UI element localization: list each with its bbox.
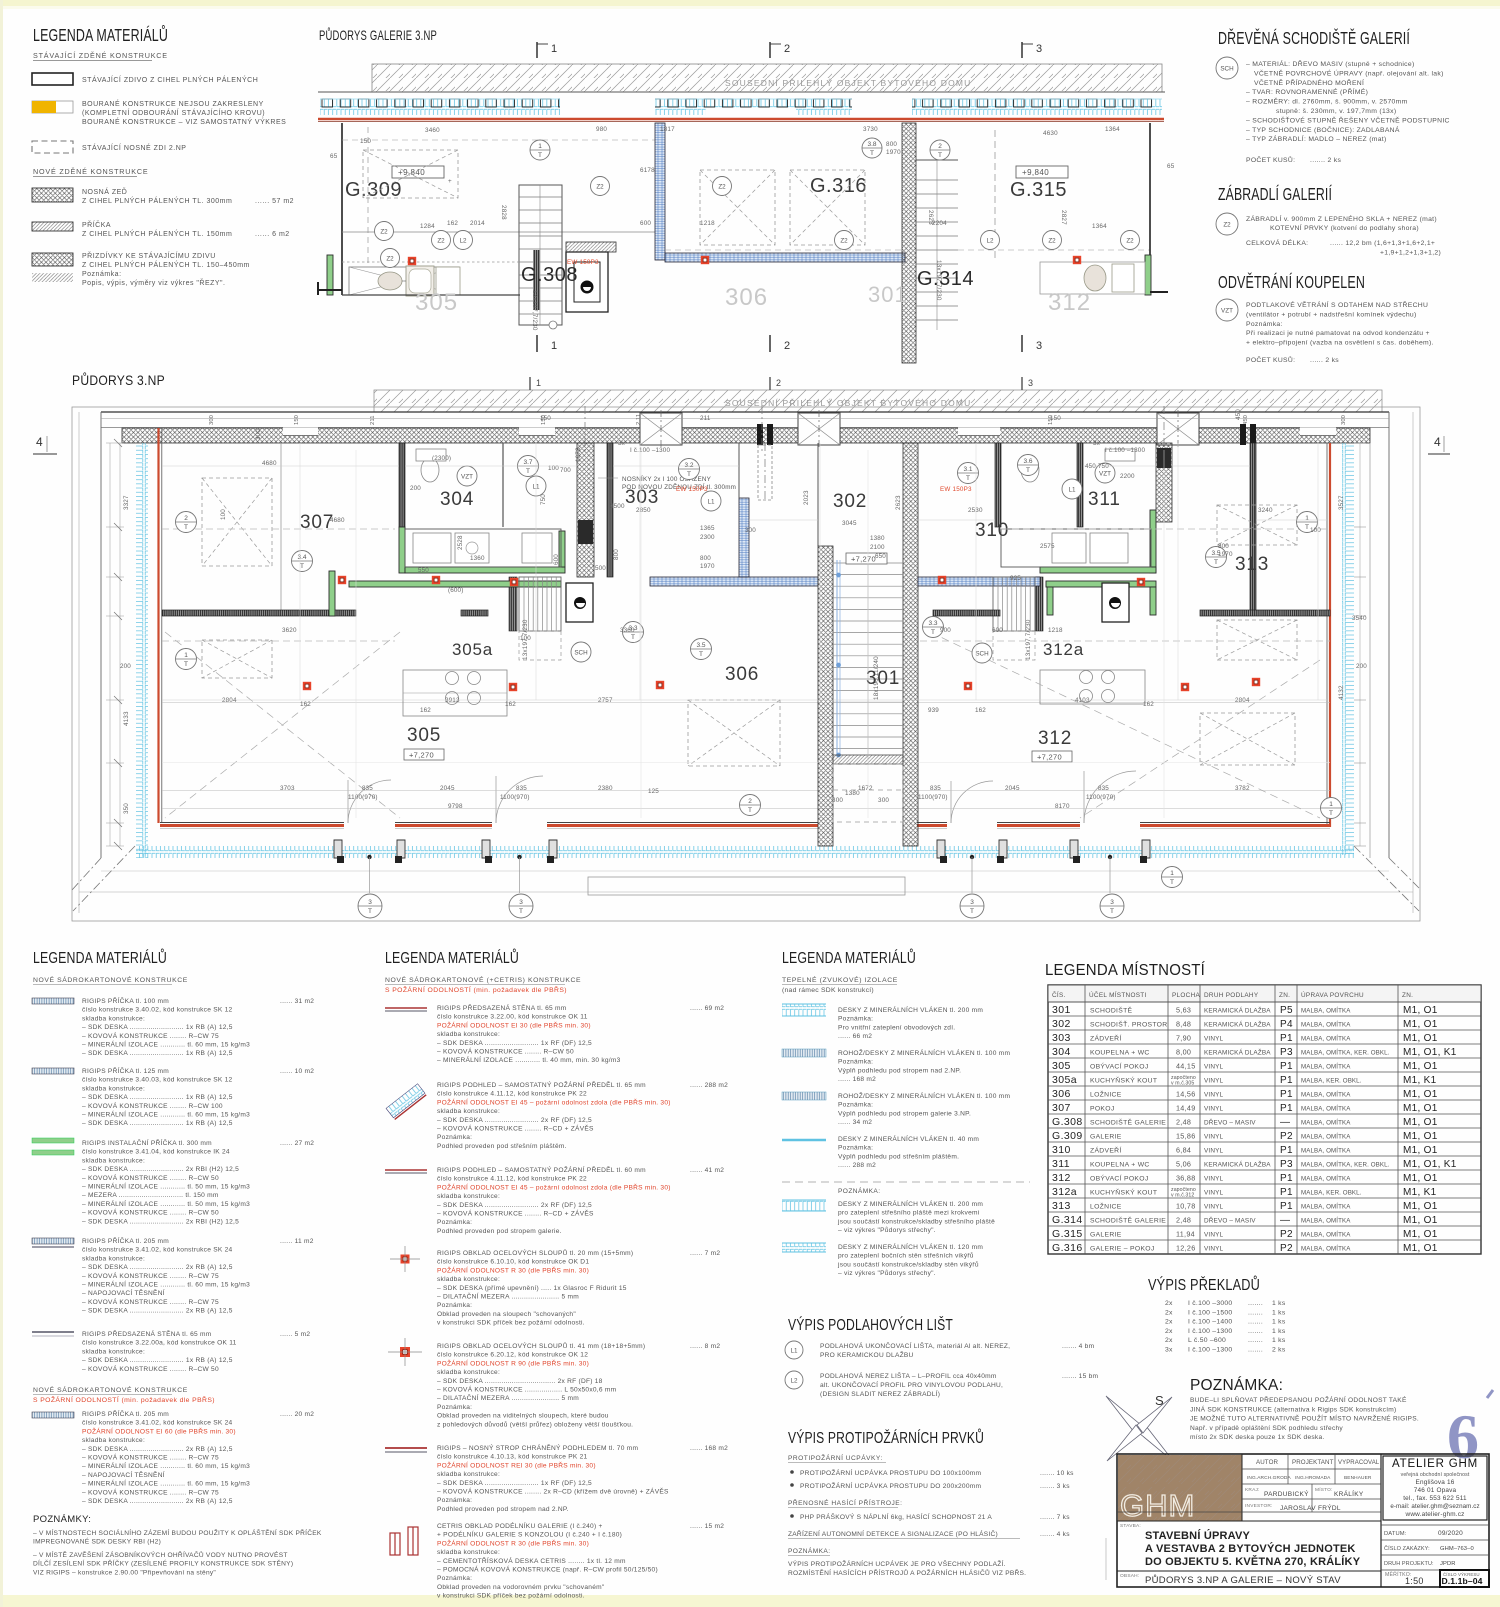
svg-text:4103: 4103 <box>1075 697 1090 704</box>
svg-text:310: 310 <box>975 520 1009 541</box>
svg-text:– TVAR: ROVNORAMENNÉ (PŘÍMÉ): – TVAR: ROVNORAMENNÉ (PŘÍMÉ) <box>1246 87 1368 96</box>
svg-text:3782: 3782 <box>1235 785 1250 792</box>
svg-text:162: 162 <box>447 220 458 227</box>
svg-text:– NAPOJOVACÍ TĚSNĚNÍ: – NAPOJOVACÍ TĚSNĚNÍ <box>82 1288 165 1297</box>
svg-text:...... 6 m2: ...... 6 m2 <box>255 231 290 238</box>
svg-text:211: 211 <box>700 415 711 422</box>
svg-text:.......: ....... <box>1248 1319 1263 1326</box>
svg-text:VINYL: VINYL <box>1204 1092 1224 1099</box>
svg-text:Výplň podhledu pod stropem nad: Výplň podhledu pod stropem nad 2.NP. <box>838 1067 961 1074</box>
svg-text:T: T <box>184 524 188 531</box>
svg-text:– SDK DESKA .................: – SDK DESKA .......................... 2… <box>82 1446 233 1453</box>
svg-text:T: T <box>368 908 372 915</box>
svg-text:1380: 1380 <box>870 535 885 542</box>
svg-text:Obklad proveden na vodorovném: Obklad proveden na vodorovném prvku "sch… <box>437 1584 605 1591</box>
svg-text:8,48: 8,48 <box>1176 1020 1191 1029</box>
svg-text:3x: 3x <box>1093 440 1101 447</box>
svg-text:– DILATAČNÍ MEZERA ..........: – DILATAČNÍ MEZERA .....................… <box>437 1292 579 1301</box>
svg-text:350: 350 <box>123 803 130 814</box>
svg-text:600: 600 <box>992 627 1003 634</box>
svg-text:7,90: 7,90 <box>1176 1034 1191 1043</box>
svg-text:číslo konstrukce 6.10.10, kód: číslo konstrukce 6.10.10, kód konstrukce… <box>437 1259 589 1266</box>
svg-text:Popis, výpis, výměry viz výkre: Popis, výpis, výměry viz výkres "ŘEZY". <box>82 278 226 287</box>
svg-text:2530: 2530 <box>968 507 983 514</box>
svg-text:2804: 2804 <box>222 697 237 704</box>
svg-text:650: 650 <box>875 553 886 560</box>
svg-text:– SDK DESKA .................: – SDK DESKA .......................... 2… <box>82 1308 233 1315</box>
svg-text:T: T <box>1026 467 1030 474</box>
svg-text:3.7: 3.7 <box>523 459 532 466</box>
svg-text:Obklad proveden na sloupech "s: Obklad proveden na sloupech "schovaných" <box>437 1311 576 1318</box>
svg-text:– KOVOVÁ KONSTRUKCE ........: – KOVOVÁ KONSTRUKCE ........ R–CW 75 <box>82 1271 219 1280</box>
svg-text:.......: ....... <box>1248 1309 1263 1316</box>
svg-text:1 ks: 1 ks <box>1272 1300 1286 1307</box>
svg-text:PODLAHOVÁ NEREZ LIŠTA – L–PROF: PODLAHOVÁ NEREZ LIŠTA – L–PROFIL cca 40x… <box>820 1371 997 1380</box>
svg-text:1: 1 <box>184 652 188 659</box>
svg-text:800: 800 <box>613 549 620 560</box>
svg-text:1100(970): 1100(970) <box>1086 794 1116 801</box>
svg-text:PODTLAKOVÉ VĚTRÁNÍ S ODTAHEM N: PODTLAKOVÉ VĚTRÁNÍ S ODTAHEM NAD STŘECHU <box>1246 300 1428 309</box>
svg-text:2200: 2200 <box>1120 473 1135 480</box>
svg-text:JPDR: JPDR <box>1440 1561 1456 1567</box>
svg-text:L1: L1 <box>1068 486 1076 493</box>
svg-text:3703: 3703 <box>280 785 295 792</box>
svg-text:POŽÁRNÍ ODOLNOST EI 45 – požár: POŽÁRNÍ ODOLNOST EI 45 – požární odolnos… <box>437 1182 671 1191</box>
svg-text:SCHODIŠŤ. PROSTOR: SCHODIŠŤ. PROSTOR <box>1090 1020 1167 1029</box>
svg-text:skladba konstrukce:: skladba konstrukce: <box>82 1255 145 1262</box>
svg-text:Podhled proveden pod střešním: Podhled proveden pod střešním pláštěm. <box>437 1143 567 1150</box>
svg-text:800: 800 <box>700 555 711 562</box>
svg-text:2: 2 <box>784 340 790 352</box>
svg-text:125: 125 <box>648 788 659 795</box>
svg-text:3.2: 3.2 <box>684 462 693 469</box>
svg-text:pro zateplení střešního pláště: pro zateplení střešního pláště mezi krok… <box>838 1210 980 1217</box>
svg-text:4: 4 <box>1434 435 1441 449</box>
svg-text:v konstrukci SDK příček bez po: v konstrukci SDK příček bez požární odol… <box>437 1320 585 1327</box>
svg-text:T: T <box>519 908 523 915</box>
svg-text:SCH: SCH <box>975 650 989 657</box>
svg-text:– KOVOVÁ KONSTRUKCE ........: – KOVOVÁ KONSTRUKCE ........ R–CW 75 <box>82 1297 219 1306</box>
svg-text:– NAPOJOVACÍ TĚSNĚNÍ: – NAPOJOVACÍ TĚSNĚNÍ <box>82 1470 165 1479</box>
svg-text:RIGIPS OBKLAD OCELOVÝCH SLOUPŮ: RIGIPS OBKLAD OCELOVÝCH SLOUPŮ tl. 20 mm… <box>437 1248 633 1257</box>
svg-text:– SDK DESKA .................: – SDK DESKA .......................... 2… <box>437 1117 592 1124</box>
svg-text:– KOVOVÁ KONSTRUKCE ........: – KOVOVÁ KONSTRUKCE ........ R–CW 50 <box>82 1364 219 1373</box>
svg-text:...... 5 m2: ...... 5 m2 <box>280 1331 310 1338</box>
svg-text:2100: 2100 <box>870 544 885 551</box>
svg-text:POZNÁMKA:: POZNÁMKA: <box>1190 1377 1283 1394</box>
svg-text:2045: 2045 <box>1005 785 1020 792</box>
svg-text:M1, K1: M1, K1 <box>1403 1187 1437 1198</box>
svg-text:312a: 312a <box>1052 1186 1077 1198</box>
svg-text:S POŽÁRNÍ ODOLNOSTÍ (min. poža: S POŽÁRNÍ ODOLNOSTÍ (min. požadavek dle … <box>385 985 567 994</box>
svg-text:PROTIPOŽÁRNÍ UCPÁVKA PROSTUPU: PROTIPOŽÁRNÍ UCPÁVKA PROSTUPU DO 200x200… <box>800 1481 982 1490</box>
svg-text:2x: 2x <box>1165 1319 1173 1326</box>
svg-text:925: 925 <box>1010 575 1021 582</box>
svg-text:DESKY Z MINERÁLNÍCH VLÁKEN tl.: DESKY Z MINERÁLNÍCH VLÁKEN tl. 120 mm <box>838 1242 983 1251</box>
svg-text:1360: 1360 <box>470 555 485 562</box>
svg-text:150: 150 <box>1050 415 1061 422</box>
svg-text:M1, O1: M1, O1 <box>1403 1131 1438 1142</box>
svg-text:– ROZMĚRY: dl. 2760mm, š. 9: – ROZMĚRY: dl. 2760mm, š. 900mm, v. 2570… <box>1246 97 1408 106</box>
svg-text:P1: P1 <box>1280 1075 1293 1086</box>
svg-text:2828: 2828 <box>500 205 507 220</box>
svg-text:302: 302 <box>833 491 867 512</box>
svg-text:305a: 305a <box>452 640 493 659</box>
svg-text:STAVBA:: STAVBA: <box>1120 1523 1141 1529</box>
svg-text:– SDK DESKA .................: – SDK DESKA .......................... 2… <box>82 1166 239 1173</box>
svg-text:1218: 1218 <box>700 220 715 227</box>
svg-text:...... 27 m2: ...... 27 m2 <box>280 1140 314 1147</box>
svg-text:....... 4 bm: ....... 4 bm <box>1062 1343 1095 1350</box>
svg-text:Englišova 16: Englišova 16 <box>1416 1479 1455 1486</box>
svg-text:36,88: 36,88 <box>1176 1174 1196 1183</box>
svg-text:– V MÍSTNOSTECH SOCIÁLNÍHO ZÁ: – V MÍSTNOSTECH SOCIÁLNÍHO ZÁZEMÍ BUDOU … <box>33 1528 322 1537</box>
svg-text:e-mail: atelier.ghm@seznam.cz: e-mail: atelier.ghm@seznam.cz <box>1390 1503 1479 1510</box>
svg-text:.......: ....... <box>1248 1337 1263 1344</box>
svg-text:ODVĚTRÁNÍ KOUPELEN: ODVĚTRÁNÍ KOUPELEN <box>1218 272 1365 292</box>
svg-text:GHM–763–0: GHM–763–0 <box>1440 1546 1474 1552</box>
svg-text:PŘÍČKA: PŘÍČKA <box>82 220 111 229</box>
svg-text:VINYL: VINYL <box>1204 1232 1224 1239</box>
svg-text:M1, O1: M1, O1 <box>1403 1117 1438 1128</box>
svg-text:T: T <box>748 807 752 814</box>
svg-text:– KOVOVÁ KONSTRUKCE ........: – KOVOVÁ KONSTRUKCE ........ R–CW 50 <box>82 1208 219 1217</box>
svg-text:3: 3 <box>1028 378 1033 388</box>
svg-text:– KOVOVÁ KONSTRUKCE ........: – KOVOVÁ KONSTRUKCE ........ R–CW 50 <box>82 1173 219 1182</box>
svg-text:300: 300 <box>832 797 843 804</box>
svg-text:SCH: SCH <box>1220 65 1234 72</box>
svg-text:PLOCHA: PLOCHA <box>1172 992 1201 999</box>
svg-text:44,15: 44,15 <box>1176 1062 1196 1071</box>
svg-text:MALBA, OMÍTKA: MALBA, OMÍTKA <box>1301 1176 1351 1183</box>
svg-text:– SDK DESKA .................: – SDK DESKA .......................... 2… <box>437 1202 592 1209</box>
svg-text:162: 162 <box>300 701 311 708</box>
svg-text:100: 100 <box>1310 527 1321 534</box>
svg-text:306: 306 <box>725 284 768 311</box>
svg-text:MALBA, OMÍTKA: MALBA, OMÍTKA <box>1301 1092 1351 1099</box>
svg-text:P1: P1 <box>1280 1187 1293 1198</box>
svg-text:– MINERÁLNÍ IZOLACE .........: – MINERÁLNÍ IZOLACE ............ tl. 60 … <box>82 1040 250 1049</box>
svg-text:– SDK DESKA .................: – SDK DESKA .......................... 1… <box>82 1120 233 1127</box>
svg-text:P1: P1 <box>1280 1103 1293 1114</box>
svg-text:200: 200 <box>120 663 131 670</box>
svg-text:3730: 3730 <box>863 126 878 133</box>
svg-text:Poznámka:: Poznámka: <box>437 1404 472 1411</box>
svg-text:– MATERIÁL: DŘEVO MASIV (stu: – MATERIÁL: DŘEVO MASIV (stupně + schodn… <box>1246 59 1415 68</box>
svg-text:VINYL: VINYL <box>1204 1036 1224 1043</box>
svg-text:M1, K1: M1, K1 <box>1403 1075 1437 1086</box>
svg-text:VINYL: VINYL <box>1204 1078 1224 1085</box>
svg-text:3: 3 <box>970 899 974 906</box>
svg-text:EW 150P3: EW 150P3 <box>676 486 708 493</box>
svg-text:+7,270: +7,270 <box>851 555 876 564</box>
svg-text:P4: P4 <box>1280 1019 1293 1030</box>
svg-text:...... 288 m2: ...... 288 m2 <box>838 1162 876 1169</box>
svg-text:– POMOCNÁ KOVOVÁ KONSTRUKCE (: – POMOCNÁ KOVOVÁ KONSTRUKCE (např. R–CW … <box>437 1565 658 1574</box>
svg-text:v m.č.312: v m.č.312 <box>1171 1193 1194 1199</box>
svg-text:BUDE–LI SPLŇOVAT PŘEDEPSANOU P: BUDE–LI SPLŇOVAT PŘEDEPSANOU POŽÁRNÍ ODO… <box>1190 1395 1407 1404</box>
svg-text:3.8: 3.8 <box>867 141 876 148</box>
svg-text:162: 162 <box>1143 701 1154 708</box>
svg-text:3x: 3x <box>618 440 626 447</box>
svg-text:6,84: 6,84 <box>1176 1146 1191 1155</box>
svg-text:Při realizaci je nutné pamatov: Při realizaci je nutné pamatovat na odvo… <box>1246 330 1430 337</box>
svg-text:T: T <box>970 908 974 915</box>
svg-text:KUCHYŇSKÝ KOUT: KUCHYŇSKÝ KOUT <box>1090 1076 1157 1085</box>
svg-text:G.316: G.316 <box>1052 1242 1083 1254</box>
svg-text:3.1: 3.1 <box>963 466 972 473</box>
svg-text:3460: 3460 <box>425 127 440 134</box>
svg-text:750: 750 <box>540 494 547 505</box>
svg-text:3x: 3x <box>1165 1347 1173 1354</box>
svg-text:MALBA, KER. OBKL.: MALBA, KER. OBKL. <box>1301 1190 1362 1197</box>
svg-text:KOUPELNA + WC: KOUPELNA + WC <box>1090 1050 1150 1057</box>
svg-text:Z CIHEL PLNÝCH PÁLENÝCH TL. 15: Z CIHEL PLNÝCH PÁLENÝCH TL. 150–450mm <box>82 260 250 269</box>
svg-text:M1, O1: M1, O1 <box>1403 1103 1438 1114</box>
svg-text:G.315: G.315 <box>1010 179 1067 201</box>
svg-text:304: 304 <box>440 489 474 510</box>
svg-text:305: 305 <box>407 725 441 746</box>
svg-text:I č.100 –1400: I č.100 –1400 <box>1188 1319 1232 1326</box>
svg-text:1970: 1970 <box>700 563 715 570</box>
svg-text:13x197,7/230: 13x197,7/230 <box>531 290 538 331</box>
svg-text:G.314: G.314 <box>917 268 974 290</box>
svg-text:RIGIPS – NOSNÝ STROP CHRÁNĚNÝ: RIGIPS – NOSNÝ STROP CHRÁNĚNÝ PODHLEDEM … <box>437 1443 638 1452</box>
svg-text:2623: 2623 <box>927 210 934 225</box>
svg-text:pro zateplení bočních stěn stř: pro zateplení bočních stěn střešních vik… <box>838 1252 974 1260</box>
svg-text:MÍSTO:: MÍSTO: <box>1315 1486 1333 1493</box>
svg-text:ZN.: ZN. <box>1279 992 1290 999</box>
svg-text:– MINERÁLNÍ IZOLACE .........: – MINERÁLNÍ IZOLACE ............ tl. 50 … <box>82 1199 250 1208</box>
svg-text:...... 12,2 bm (1,6+1,3+1,6+2: ...... 12,2 bm (1,6+1,3+1,6+2,1+ <box>1330 240 1435 247</box>
svg-text:3: 3 <box>519 899 523 906</box>
svg-text:Poznámka:: Poznámka: <box>437 1219 472 1226</box>
svg-text:v konstrukci SDK příček bez po: v konstrukci SDK příček bez požární odol… <box>437 1593 585 1600</box>
svg-text:1970: 1970 <box>886 149 901 156</box>
svg-text:Poznámka:: Poznámka: <box>437 1302 472 1309</box>
svg-text:PROJEKTANT: PROJEKTANT <box>1292 1459 1334 1466</box>
svg-text:PROTIPOŽÁRNÍ UCPÁVKA PROSTUPU: PROTIPOŽÁRNÍ UCPÁVKA PROSTUPU DO 100x100… <box>800 1468 982 1477</box>
svg-text:www.atelier-ghm.cz: www.atelier-ghm.cz <box>1405 1511 1465 1518</box>
svg-text:DŘEVO – MASIV: DŘEVO – MASIV <box>1204 1216 1256 1225</box>
svg-text:...... 288 m2: ...... 288 m2 <box>690 1082 728 1089</box>
svg-text:+7,270: +7,270 <box>409 751 434 760</box>
svg-text:211: 211 <box>370 415 376 425</box>
svg-text:450: 450 <box>1243 415 1249 425</box>
svg-text:Např. v případě opláštění SDK: Např. v případě opláštění SDK podhledu s… <box>1190 1425 1343 1432</box>
svg-text:STÁVAJÍCÍ NOSNÉ ZDI 2.NP: STÁVAJÍCÍ NOSNÉ ZDI 2.NP <box>82 143 186 152</box>
svg-text:T: T <box>870 150 874 157</box>
svg-text:2x: 2x <box>1165 1337 1173 1344</box>
svg-text:550: 550 <box>418 567 429 574</box>
svg-text:LOŽNICE: LOŽNICE <box>1090 1090 1122 1099</box>
svg-text:6178: 6178 <box>640 167 655 174</box>
svg-text:VÝPIS PROTIPOŽÁRNÍCH PRVKŮ: VÝPIS PROTIPOŽÁRNÍCH PRVKŮ <box>788 1429 984 1447</box>
svg-text:LEGENDA MÍSTNOSTÍ: LEGENDA MÍSTNOSTÍ <box>1045 962 1205 979</box>
svg-text:....... 15 bm: ....... 15 bm <box>1062 1373 1098 1380</box>
svg-text:1: 1 <box>538 143 542 150</box>
svg-text:POŽÁRNÍ ODOLNOST REI 30 (dle P: POŽÁRNÍ ODOLNOST REI 30 (dle PBŘS min. 3… <box>437 1460 596 1469</box>
svg-text:MALBA, OMÍTKA: MALBA, OMÍTKA <box>1301 1008 1351 1015</box>
svg-text:....... 10 ks: ....... 10 ks <box>1040 1470 1074 1477</box>
svg-text:301: 301 <box>868 282 908 307</box>
svg-text:RIGIPS OBKLAD OCELOVÝCH SLOUPŮ: RIGIPS OBKLAD OCELOVÝCH SLOUPŮ tl. 41 mm… <box>437 1341 645 1350</box>
svg-text:Z CIHEL PLNÝCH PÁLENÝCH TL. 30: Z CIHEL PLNÝCH PÁLENÝCH TL. 300mm <box>82 196 232 205</box>
svg-text:1 ks: 1 ks <box>1272 1328 1286 1335</box>
svg-text:10,78: 10,78 <box>1176 1202 1196 1211</box>
svg-text:312a: 312a <box>1043 640 1084 659</box>
svg-text:KOTEVNÍ PRVKY (kotvení do podl: KOTEVNÍ PRVKY (kotvení do podlahy shora) <box>1270 223 1419 232</box>
svg-text:311: 311 <box>1052 1158 1070 1170</box>
svg-text:M1, O1: M1, O1 <box>1403 1061 1438 1072</box>
svg-text:MALBA, OMÍTKA, KER. OBKL.: MALBA, OMÍTKA, KER. OBKL. <box>1301 1050 1390 1057</box>
svg-text:L1: L1 <box>790 1347 798 1354</box>
svg-text:G.308: G.308 <box>521 264 578 286</box>
svg-text:JE MOŽNÉ TUTO ALTERNATIVNĚ POU: JE MOŽNÉ TUTO ALTERNATIVNĚ POUŽÍT MÍSTO … <box>1190 1414 1419 1423</box>
svg-text:3.4: 3.4 <box>297 554 306 561</box>
svg-text:2023: 2023 <box>803 490 810 505</box>
svg-text:.......: ....... <box>1248 1328 1263 1335</box>
svg-text:500: 500 <box>595 565 606 572</box>
svg-text:I č.100 –1300: I č.100 –1300 <box>630 447 670 454</box>
svg-text:ZÁBRADLÍ v. 900mm Z LEPENÉHO S: ZÁBRADLÍ v. 900mm Z LEPENÉHO SKLA + NERE… <box>1246 214 1437 223</box>
svg-text:místo 2x SDK deska pouze 1x SD: místo 2x SDK deska pouze 1x SDK deska. <box>1190 1434 1324 1441</box>
svg-text:313: 313 <box>1235 554 1269 575</box>
svg-text:300: 300 <box>209 415 215 425</box>
svg-text:....... 4 ks: ....... 4 ks <box>1040 1531 1070 1538</box>
svg-text:M1, O1: M1, O1 <box>1403 1145 1438 1156</box>
svg-text:alt. UKONČOVACÍ PROFIL PRO VIN: alt. UKONČOVACÍ PROFIL PRO VINYLOVOU POD… <box>820 1380 1003 1389</box>
svg-text:13x197,7/230: 13x197,7/230 <box>1025 619 1032 660</box>
svg-text:307: 307 <box>1052 1102 1071 1114</box>
svg-text:jsou součástí konstrukce/sklad: jsou součástí konstrukce/skladby střešní… <box>837 1218 995 1225</box>
svg-text:SCHODIŠTĚ GALERIE: SCHODIŠTĚ GALERIE <box>1090 1216 1166 1225</box>
svg-text:Poznámka:: Poznámka: <box>437 1134 472 1141</box>
svg-text:150: 150 <box>294 415 300 425</box>
svg-text:CETRIS OBKLAD PODÉLNÍKU GALERI: CETRIS OBKLAD PODÉLNÍKU GALERIE (I č.240… <box>437 1521 603 1530</box>
svg-text:– KOVOVÁ KONSTRUKCE ........: – KOVOVÁ KONSTRUKCE ........ R–CW 75 <box>82 1031 219 1040</box>
svg-text:VINYL: VINYL <box>1204 1204 1224 1211</box>
svg-text:+9,840: +9,840 <box>1022 168 1049 177</box>
svg-text:2x: 2x <box>1165 1309 1173 1316</box>
svg-text:(ventilátor + potrubí + nadstř: (ventilátor + potrubí + nadstřešní komín… <box>1246 311 1417 318</box>
svg-text:1100(970): 1100(970) <box>348 794 378 801</box>
svg-text:P5: P5 <box>1280 1005 1293 1016</box>
svg-text:MALBA, OMÍTKA: MALBA, OMÍTKA <box>1301 1218 1351 1225</box>
svg-text:.......: ....... <box>1248 1347 1263 1354</box>
svg-text:M1, O1: M1, O1 <box>1403 1019 1438 1030</box>
svg-text:Poznámka:: Poznámka: <box>838 1059 873 1066</box>
svg-text:BOURANÉ KONSTRUKCE – VIZ SAM: BOURANÉ KONSTRUKCE – VIZ SAMOSTATNÝ VÝKR… <box>82 117 286 126</box>
svg-text:306: 306 <box>1052 1088 1071 1100</box>
svg-text:JINÁ SDK KONSTRUKCE (alternati: JINÁ SDK KONSTRUKCE (alternativa k Rigip… <box>1190 1404 1397 1413</box>
svg-text:300: 300 <box>745 527 756 534</box>
svg-text:– MINERÁLNÍ IZOLACE .........: – MINERÁLNÍ IZOLACE ............ tl. 40 … <box>437 1055 621 1064</box>
svg-text:VINYL: VINYL <box>1204 1064 1224 1071</box>
svg-text:KRAJ:: KRAJ: <box>1245 1487 1260 1493</box>
svg-text:3240: 3240 <box>1258 507 1273 514</box>
svg-text:2x: 2x <box>1165 1328 1173 1335</box>
svg-text:Poznámka:: Poznámka: <box>437 1575 472 1582</box>
svg-text:skladba konstrukce:: skladba konstrukce: <box>437 1549 500 1556</box>
svg-text:4630: 4630 <box>1043 130 1058 137</box>
svg-text:5,63: 5,63 <box>1176 1006 1191 1015</box>
svg-text:1078: 1078 <box>575 447 582 462</box>
svg-text:3500: 3500 <box>610 503 625 510</box>
svg-text:– TYP ZÁBRADLÍ: MADLO – NE: – TYP ZÁBRADLÍ: MADLO – NEREZ (mat) <box>1246 134 1387 143</box>
svg-text:150: 150 <box>540 415 551 422</box>
svg-text:RIGIPS PODHLED – SAMOSTATNÝ PO: RIGIPS PODHLED – SAMOSTATNÝ POŽÁRNÍ PŘED… <box>437 1165 646 1174</box>
svg-text:MALBA, OMÍTKA, KER. OBKL.: MALBA, OMÍTKA, KER. OBKL. <box>1301 1162 1390 1169</box>
svg-text:...... 15 m2: ...... 15 m2 <box>690 1523 724 1530</box>
svg-text:GALERIE – POKOJ: GALERIE – POKOJ <box>1090 1246 1155 1253</box>
svg-text:ZÁDVEŘÍ: ZÁDVEŘÍ <box>1090 1146 1122 1155</box>
svg-text:ROHOŽ/DESKY Z MINERÁLNÍCH VLÁK: ROHOŽ/DESKY Z MINERÁLNÍCH VLÁKEN tl. 100… <box>838 1048 1010 1057</box>
svg-text:3360: 3360 <box>620 627 635 634</box>
svg-text:DATUM:: DATUM: <box>1384 1531 1407 1537</box>
svg-text:835: 835 <box>1098 785 1109 792</box>
svg-text:M1, O1: M1, O1 <box>1403 1005 1438 1016</box>
svg-text:skladba konstrukce:: skladba konstrukce: <box>437 1193 500 1200</box>
svg-text:L2: L2 <box>459 237 467 244</box>
svg-text:...... 31 m2: ...... 31 m2 <box>280 998 314 1005</box>
svg-text:MALBA, OMÍTKA: MALBA, OMÍTKA <box>1301 1148 1351 1155</box>
svg-text:P1: P1 <box>1280 1173 1293 1184</box>
svg-text:RIGIPS PŘÍČKA tl. 100 mm: RIGIPS PŘÍČKA tl. 100 mm <box>82 996 169 1005</box>
svg-text:T: T <box>538 152 542 159</box>
svg-text:5,06: 5,06 <box>1176 1160 1191 1169</box>
svg-text:LEGENDA MATERIÁLŮ: LEGENDA MATERIÁLŮ <box>385 949 519 967</box>
svg-text:3527: 3527 <box>1338 495 1345 510</box>
svg-text:číslo konstrukce 3.41.02, kód: číslo konstrukce 3.41.02, kód konstrukce… <box>82 1247 232 1254</box>
svg-text:2: 2 <box>938 143 942 150</box>
svg-text:G.309: G.309 <box>1052 1130 1083 1142</box>
svg-text:– KOVOVÁ KONSTRUKCE ........: – KOVOVÁ KONSTRUKCE ........ R–CW 75 <box>82 1487 219 1496</box>
svg-text:...... 11 m2: ...... 11 m2 <box>280 1238 314 1245</box>
svg-text:MALBA, OMÍTKA: MALBA, OMÍTKA <box>1301 1022 1351 1029</box>
svg-text:600: 600 <box>640 220 651 227</box>
svg-text:1284: 1284 <box>420 223 435 230</box>
svg-text:200: 200 <box>1356 663 1367 670</box>
svg-text:1 ks: 1 ks <box>1272 1309 1286 1316</box>
svg-text:2300: 2300 <box>700 534 715 541</box>
svg-text:980: 980 <box>596 126 607 133</box>
svg-text:Z2: Z2 <box>380 228 388 235</box>
svg-text:Obklad proveden na viditelných: Obklad proveden na viditelných sloupech,… <box>437 1413 609 1420</box>
svg-text:Podhled proveden pod stropem n: Podhled proveden pod stropem nad 2.NP. <box>437 1506 569 1513</box>
svg-text:POŽÁRNÍ ODOLNOST EI 60 (dle PB: POŽÁRNÍ ODOLNOST EI 60 (dle PBŘS min. 30… <box>82 1426 236 1435</box>
svg-text:1817: 1817 <box>660 126 675 133</box>
svg-text:1: 1 <box>536 378 541 388</box>
svg-text:306: 306 <box>725 664 759 685</box>
svg-text:750: 750 <box>1098 463 1109 470</box>
svg-text:M1, O1: M1, O1 <box>1403 1173 1438 1184</box>
svg-text:KERAMICKÁ DLAŽBA: KERAMICKÁ DLAŽBA <box>1204 1048 1271 1057</box>
svg-text:L1: L1 <box>707 498 715 505</box>
svg-text:DRUH PODLAHY: DRUH PODLAHY <box>1204 992 1259 999</box>
svg-text:700: 700 <box>560 467 571 474</box>
svg-text:VZT: VZT <box>1221 307 1233 314</box>
svg-text:– SCHODIŠŤOVÉ STUPNĚ ŘEŠENY V: – SCHODIŠŤOVÉ STUPNĚ ŘEŠENY VČETNĚ PODST… <box>1246 115 1450 124</box>
svg-text:skladba konstrukce:: skladba konstrukce: <box>82 1157 145 1164</box>
svg-text:P2: P2 <box>1280 1243 1293 1254</box>
svg-text:....... 2 ks: ....... 2 ks <box>1310 157 1341 164</box>
svg-text:303: 303 <box>1052 1032 1071 1044</box>
svg-text:450: 450 <box>1235 409 1242 420</box>
svg-text:MALBA, OMÍTKA: MALBA, OMÍTKA <box>1301 1204 1351 1211</box>
svg-text:DESKY Z MINERÁLNÍCH VLÁKEN tl.: DESKY Z MINERÁLNÍCH VLÁKEN tl. 200 mm <box>838 1199 983 1208</box>
svg-text:...... 10 m2: ...... 10 m2 <box>280 1068 314 1075</box>
